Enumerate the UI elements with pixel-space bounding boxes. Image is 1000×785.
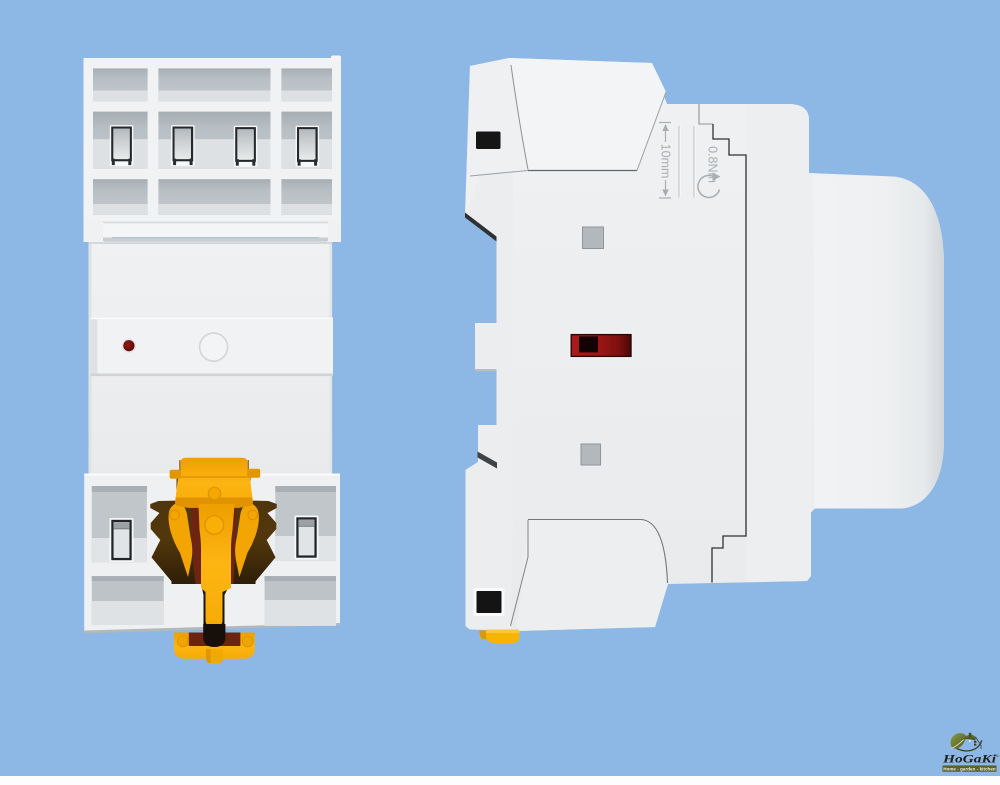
svg-text:10mm: 10mm — [659, 144, 673, 179]
svg-text:HoGaKi: HoGaKi — [942, 752, 997, 766]
svg-text:TM: TM — [994, 754, 999, 758]
svg-text:Home - garden - kitchen: Home - garden - kitchen — [943, 766, 996, 771]
